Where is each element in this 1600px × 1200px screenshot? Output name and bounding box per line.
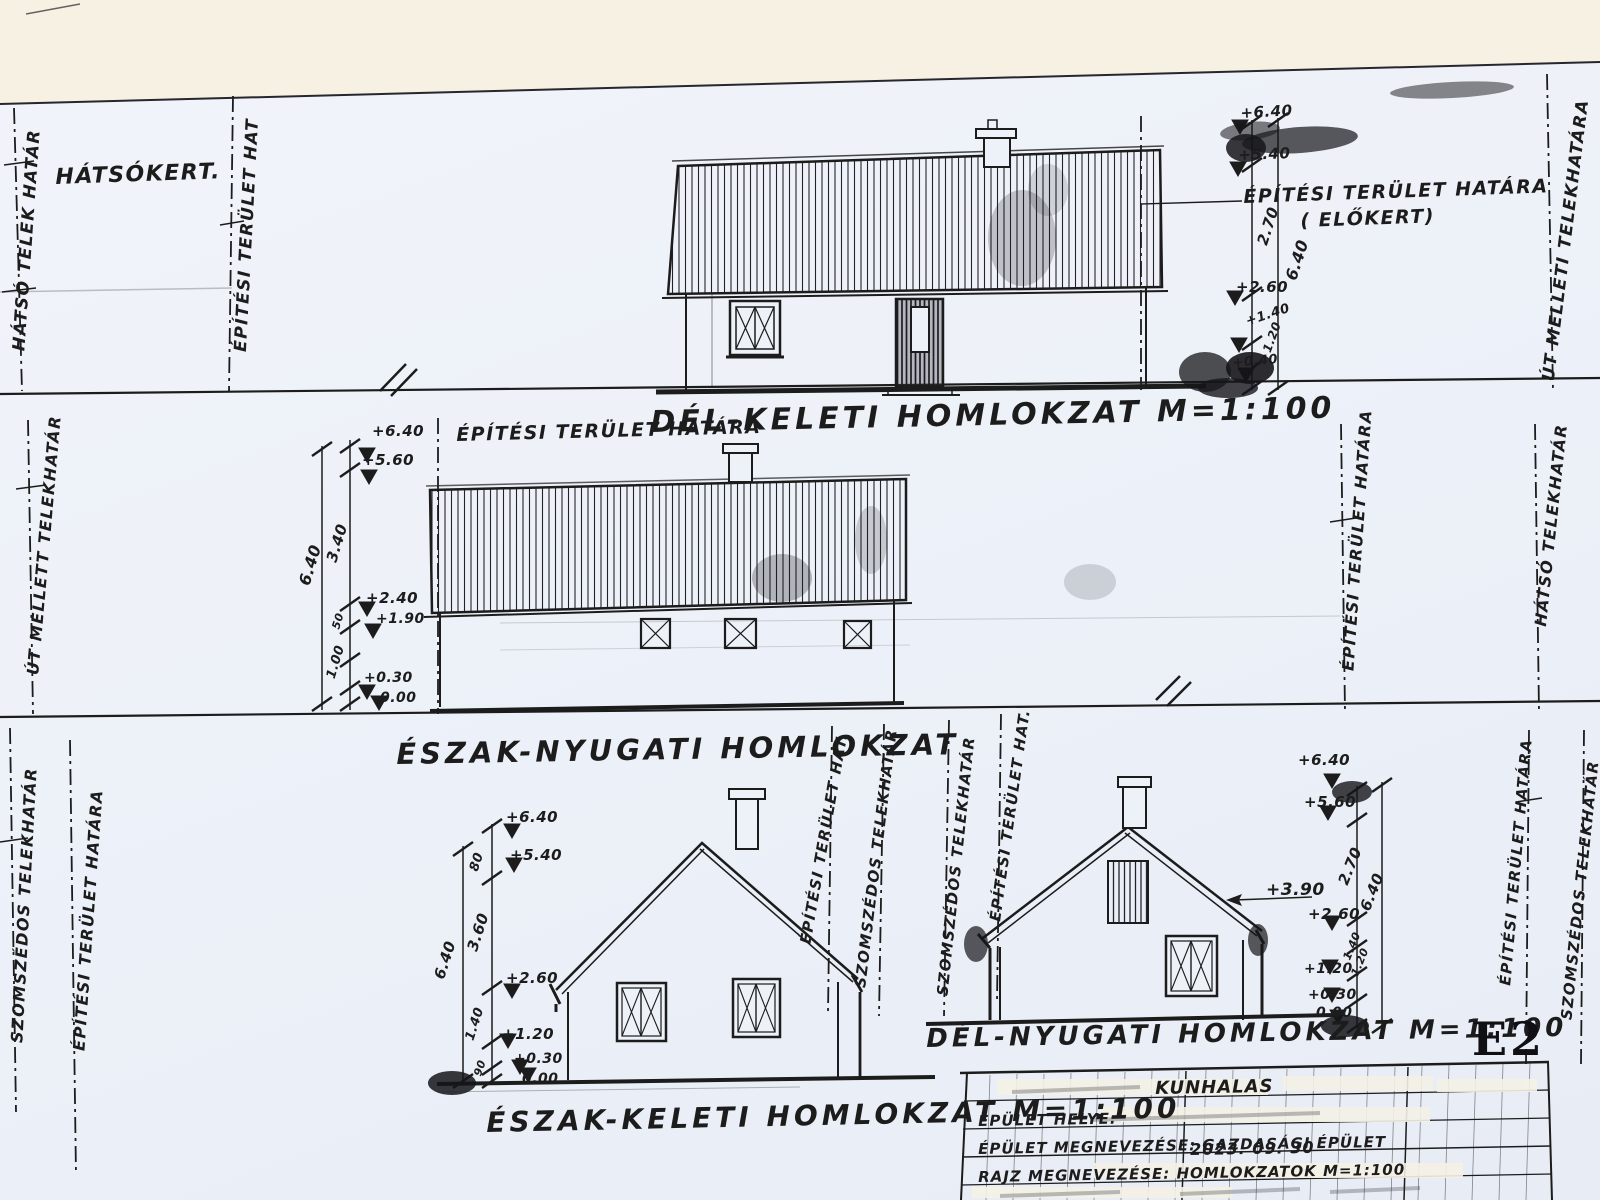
- dim-ne-120: +1.20: [502, 1025, 554, 1043]
- facade-sw-gable-vent: [1108, 861, 1148, 923]
- front-garden-label: ( ELŐKERT): [1300, 205, 1435, 232]
- facade-se-window: [726, 301, 784, 357]
- facade-ne-window-left: [617, 983, 666, 1041]
- dim-nw-640: +6.40: [372, 422, 424, 440]
- facade-southwest: [978, 777, 1312, 1020]
- facade-northwest: [424, 418, 1340, 714]
- dim-ne-030: +0.30: [514, 1051, 563, 1067]
- facade-nw-chimney: [723, 444, 758, 482]
- dim-sw-260: +2.60: [1308, 905, 1360, 923]
- architectural-drawing-sheet: HÁTSÓKERT. HÁTSÓ TELEK HATÁR ÉPÍTÉSI TER…: [0, 0, 1600, 1200]
- dim-sw-560: +5.60: [1304, 793, 1356, 811]
- facade-sw-chimney: [1118, 777, 1151, 828]
- dim-nw-190: +1.90: [376, 611, 425, 627]
- facade-se-roof: [668, 150, 1162, 294]
- facade-nw-roof: [430, 479, 906, 613]
- sheet-code-label: E2: [1472, 1012, 1545, 1066]
- facade-sw-window: [1166, 936, 1217, 996]
- dim-sw-030: +0.30: [1308, 987, 1357, 1003]
- title-block-city: KUNHALAS: [1155, 1076, 1274, 1099]
- dim-nw-030: +0.30: [364, 670, 413, 686]
- dim-nw-560: +5.60: [362, 451, 414, 469]
- title-block-date: 2023. 09. 30: [1190, 1138, 1315, 1159]
- facade-ne-window-right: [733, 979, 780, 1037]
- dim-sw-120: +1.20: [1304, 961, 1353, 977]
- facade-se-door: [882, 299, 960, 395]
- facade-ne-chimney: [729, 789, 765, 849]
- paper-top-strip: [0, 0, 1600, 104]
- dim-ne-260: +2.60: [506, 969, 558, 987]
- facade-southeast: [662, 116, 1242, 395]
- dim-ne-540: +5.40: [510, 846, 562, 864]
- dim-ne-000: 0.00: [522, 1071, 559, 1087]
- dim-se-260: +2.60: [1236, 278, 1288, 296]
- dim-se-540: +5.40: [1238, 144, 1291, 164]
- dim-nw-000: 0.00: [380, 690, 417, 706]
- dim-ne-640: +6.40: [506, 808, 558, 826]
- dim-sw-390-ridge: +3.90: [1266, 880, 1325, 900]
- title-block-site-label: ÉPÜLET HELYE:: [978, 1110, 1117, 1130]
- facade-nw-walls: [440, 601, 894, 707]
- dim-se-640: +6.40: [1240, 101, 1293, 122]
- dim-sw-640: +6.40: [1298, 751, 1350, 769]
- facade-nw-windows: [641, 619, 871, 648]
- dim-nw-240: +2.40: [366, 589, 418, 607]
